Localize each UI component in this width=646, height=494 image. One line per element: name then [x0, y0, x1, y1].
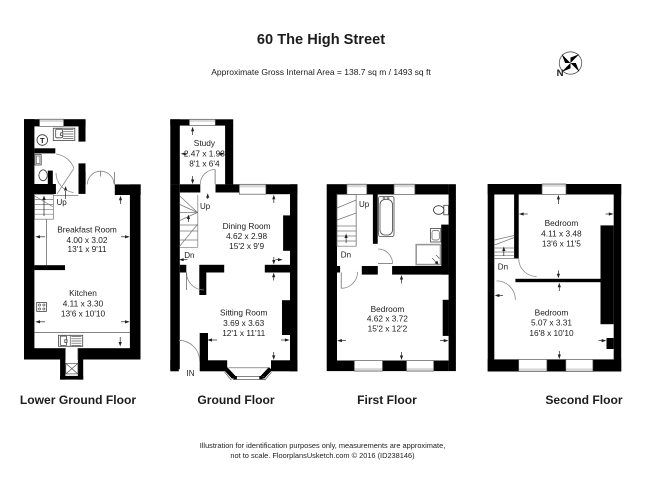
svg-text:Lower Ground Floor: Lower Ground Floor	[20, 393, 137, 407]
svg-text:Breakfast Room: Breakfast Room	[57, 225, 117, 235]
svg-text:2.47 x 1.93: 2.47 x 1.93	[184, 148, 225, 158]
svg-text:Up: Up	[359, 200, 370, 209]
svg-text:Study: Study	[194, 138, 216, 148]
svg-text:Up: Up	[200, 202, 211, 211]
svg-text:Approximate Gross Internal Are: Approximate Gross Internal Area = 138.7 …	[211, 67, 431, 77]
svg-text:13'1 x 9'11: 13'1 x 9'11	[68, 244, 107, 254]
svg-text:Bedroom: Bedroom	[545, 218, 579, 228]
svg-text:15'2 x 12'2: 15'2 x 12'2	[368, 323, 408, 333]
svg-text:4.62 x 3.72: 4.62 x 3.72	[367, 314, 408, 324]
svg-text:not to scale. FloorplansUsketc: not to scale. FloorplansUsketch.com © 20…	[230, 451, 414, 460]
svg-text:N: N	[557, 68, 564, 79]
svg-text:Dining Room: Dining Room	[223, 221, 271, 231]
svg-text:Dn: Dn	[341, 251, 351, 260]
svg-text:16'8 x 10'10: 16'8 x 10'10	[529, 328, 574, 338]
svg-text:60 The High Street: 60 The High Street	[257, 32, 385, 48]
svg-text:15'2 x 9'9: 15'2 x 9'9	[229, 241, 264, 251]
svg-text:First Floor: First Floor	[357, 393, 417, 407]
svg-text:8'1 x 6'4: 8'1 x 6'4	[189, 159, 220, 169]
svg-text:Second Floor: Second Floor	[545, 393, 623, 407]
svg-text:Dn: Dn	[184, 251, 194, 260]
svg-text:Bedroom: Bedroom	[371, 304, 405, 314]
svg-text:5.07 x 3.31: 5.07 x 3.31	[531, 318, 572, 328]
svg-text:13'6 x 10'10: 13'6 x 10'10	[61, 309, 106, 319]
svg-text:Up: Up	[57, 198, 68, 207]
svg-text:4.11 x 3.30: 4.11 x 3.30	[63, 298, 104, 308]
svg-text:4.62 x 2.98: 4.62 x 2.98	[226, 231, 267, 241]
svg-text:T: T	[40, 136, 45, 145]
svg-text:4.11 x 3.48: 4.11 x 3.48	[541, 228, 582, 238]
svg-text:Bedroom: Bedroom	[535, 307, 569, 317]
svg-text:Dn: Dn	[498, 263, 508, 272]
svg-text:12'1 x 11'11: 12'1 x 11'11	[222, 328, 265, 338]
svg-text:Ground Floor: Ground Floor	[197, 393, 275, 407]
svg-text:Illustration for identificatio: Illustration for identification purposes…	[200, 441, 446, 450]
svg-text:Kitchen: Kitchen	[69, 288, 97, 298]
svg-text:IN: IN	[187, 369, 195, 378]
svg-text:3.69 x 3.63: 3.69 x 3.63	[223, 318, 264, 328]
svg-text:Sitting Room: Sitting Room	[220, 308, 268, 318]
svg-text:13'6 x 11'5: 13'6 x 11'5	[542, 239, 581, 249]
